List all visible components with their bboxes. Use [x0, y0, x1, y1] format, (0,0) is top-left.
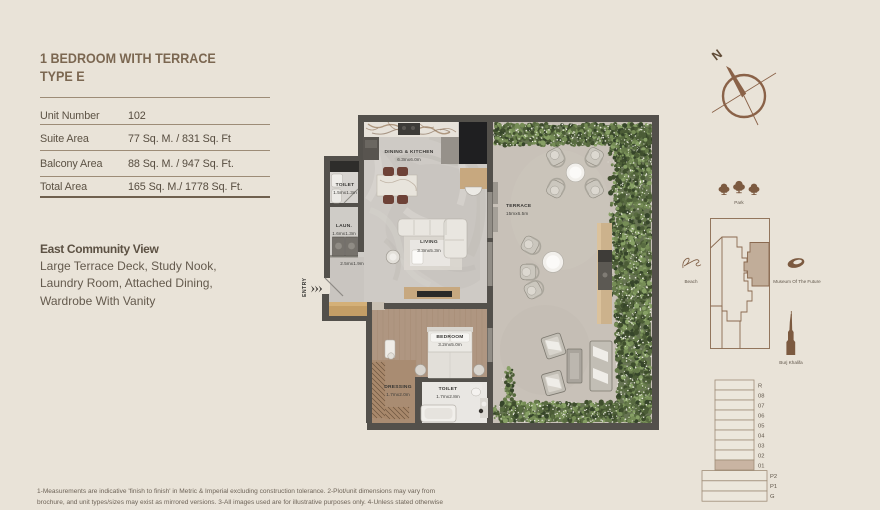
svg-text:G: G — [770, 494, 775, 500]
svg-text:02: 02 — [758, 454, 764, 460]
svg-text:Beach: Beach — [684, 279, 697, 284]
svg-text:Burj Khalifa: Burj Khalifa — [779, 360, 803, 365]
svg-text:1.7mx2.0m: 1.7mx2.0m — [386, 392, 410, 397]
svg-text:N: N — [709, 47, 725, 64]
svg-text:15mx6.5m: 15mx6.5m — [506, 211, 528, 216]
svg-text:07: 07 — [758, 404, 764, 410]
svg-text:R: R — [758, 384, 762, 390]
svg-text:P2: P2 — [770, 474, 777, 480]
svg-text:1.6mx1.3m: 1.6mx1.3m — [332, 231, 356, 236]
svg-text:06: 06 — [758, 414, 764, 420]
svg-text:08: 08 — [758, 394, 764, 400]
svg-text:1.7mx2.8m: 1.7mx2.8m — [436, 394, 460, 399]
svg-text:6.3mx6.0m: 6.3mx6.0m — [397, 157, 421, 162]
svg-text:DINING & KITCHEN: DINING & KITCHEN — [384, 149, 433, 155]
svg-text:3.2mx5.0m: 3.2mx5.0m — [438, 342, 462, 347]
svg-text:1.5mx1.3m: 1.5mx1.3m — [333, 190, 357, 195]
svg-text:DRESSING: DRESSING — [384, 384, 412, 390]
svg-text:TOILET: TOILET — [336, 182, 355, 188]
svg-text:TERRACE: TERRACE — [506, 203, 532, 209]
svg-text:LAUN.: LAUN. — [336, 223, 353, 229]
svg-text:TOILET: TOILET — [439, 386, 458, 392]
svg-text:04: 04 — [758, 434, 765, 440]
svg-text:2.5mx1.9m: 2.5mx1.9m — [340, 261, 364, 266]
svg-text:03: 03 — [758, 444, 764, 450]
svg-text:3.3mx5.3m: 3.3mx5.3m — [417, 248, 441, 253]
svg-text:01: 01 — [758, 464, 764, 470]
svg-text:Museum Of The Future: Museum Of The Future — [773, 279, 821, 284]
svg-text:P1: P1 — [770, 484, 777, 490]
svg-text:05: 05 — [758, 424, 764, 430]
svg-text:Park: Park — [734, 200, 744, 205]
svg-text:BEDROOM: BEDROOM — [436, 334, 463, 340]
svg-text:LIVING: LIVING — [420, 239, 438, 245]
svg-text:ENTRY: ENTRY — [302, 277, 308, 297]
